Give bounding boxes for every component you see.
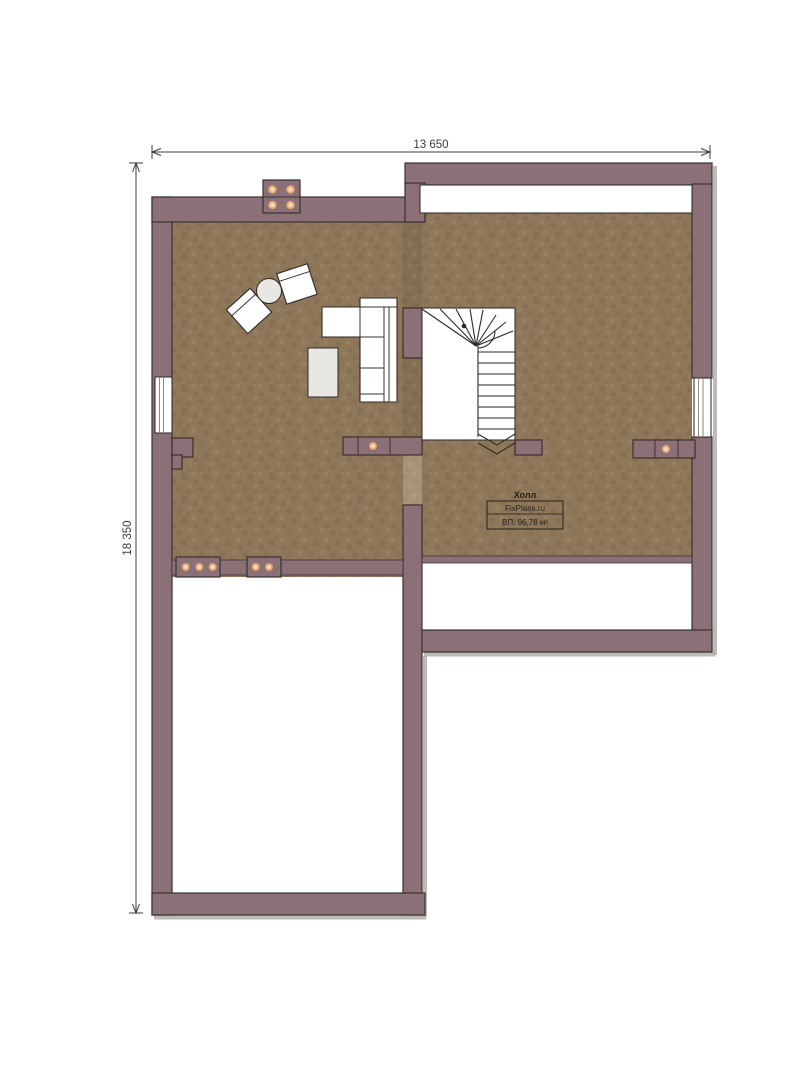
partition-stub-left [172,438,193,457]
partition-segment-1 [343,437,422,455]
stair-newel-dot [462,324,467,329]
coffee-table [308,348,338,397]
partition-stub-foot [172,455,182,469]
vent-dot-icon [195,563,203,571]
stair-side-wall [403,308,422,358]
vent-dot-icon [182,563,190,571]
dimension-top: 13 650 [152,139,710,159]
room-title: Холл [514,490,537,500]
floor-edge-rail [422,556,692,563]
dimension-top-label: 13 650 [413,139,448,151]
floor-plan-page: Холл FixPlans.ru ВП: 96,78 м² 13 650 18 … [0,0,792,1080]
left-wall [152,197,172,915]
vent-dot-icon [369,442,377,450]
vent-dot-icon [286,185,295,194]
right-bottom-wall [420,630,712,652]
watermark-label: FixPlans.ru [505,504,545,513]
vent-dot-icon [209,563,217,571]
floor-plan-svg: Холл FixPlans.ru ВП: 96,78 м² 13 650 18 … [0,0,792,1080]
top-window-band [420,185,692,213]
dimension-left-label: 18 350 [122,520,134,555]
vent-dot-icon [252,563,260,571]
bottom-wall [152,893,425,915]
right-wall-upper [692,184,712,378]
middle-vertical-wall [403,505,422,915]
vent-dot-icon [265,563,273,571]
vent-dot-icon [662,445,670,453]
top-right-wall [405,163,712,185]
right-window [694,378,711,437]
dimension-left: 18 350 [122,163,143,913]
vent-dot-icon [286,201,295,210]
vent-dot-icon [268,185,277,194]
floor-light-band [403,455,422,505]
right-wall-lower [692,437,712,652]
vent-dot-icon [268,201,277,210]
partition-segment-2 [515,440,542,455]
staircase [422,308,515,454]
area-label: ВП: 96,78 м² [502,518,548,527]
